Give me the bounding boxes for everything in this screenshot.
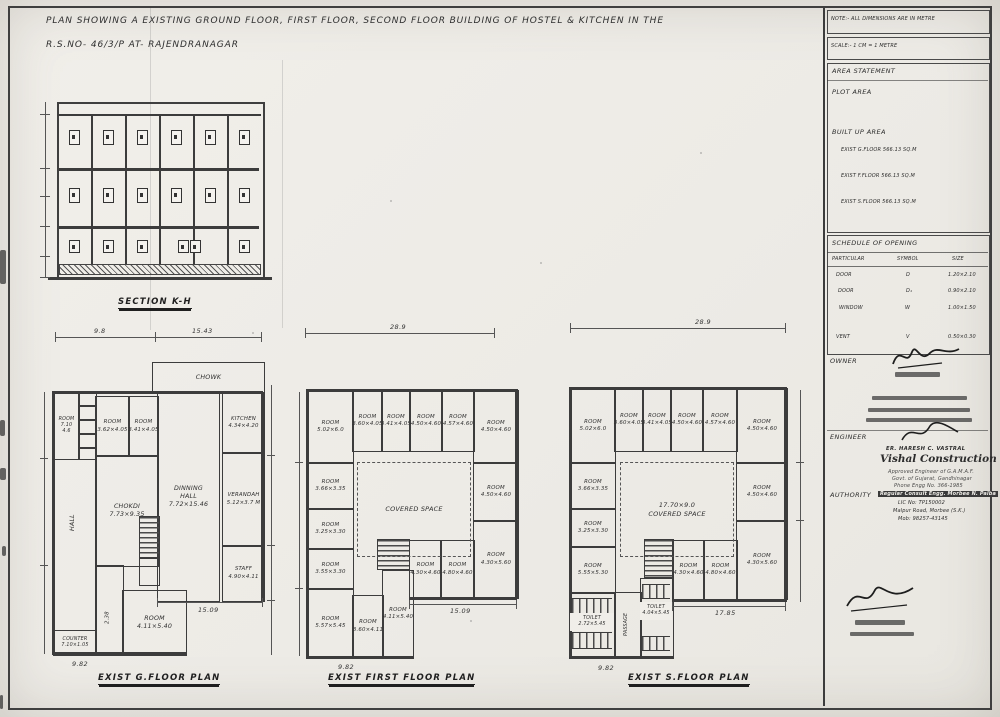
paper-spot <box>700 152 702 154</box>
room: ROOM 3.60×4.05 <box>352 390 383 452</box>
engineer-line: Phone Engg No. 366-1985 <box>894 483 963 489</box>
room-kitchen: KITCHEN 4.34×4.20 <box>222 392 265 454</box>
dim-tick <box>40 277 50 278</box>
room-staff: STAFF 4.90×4.11 <box>222 545 265 602</box>
room-dinning-hall: DINNING HALL 7.72×15.46 <box>157 392 220 602</box>
divider <box>827 80 988 81</box>
owner-signature <box>890 340 962 372</box>
engineer-line: Govt. of Gujarat, Gandhinagar <box>892 476 972 482</box>
col-size: SIZE <box>952 256 964 262</box>
dim-tick <box>40 256 50 257</box>
toilet-stalls <box>642 636 670 651</box>
room: ROOM 3.60×4.11 <box>352 595 384 658</box>
dim-tick <box>785 602 786 611</box>
scan-smudge <box>2 546 6 556</box>
sheet-title-line2: R.S.NO- 46/3/P AT- RAJENDRANAGAR <box>46 40 239 50</box>
schedule-cell: D <box>906 272 910 278</box>
divider <box>827 266 988 267</box>
dim-label: 9.8 <box>94 327 106 335</box>
paper-spot <box>470 620 472 622</box>
vert-dim-line <box>271 385 272 655</box>
schedule-cell: WINDOW <box>839 305 863 311</box>
room-toilet-label: TOILET 4.04×5.45 <box>640 602 672 620</box>
section-column <box>227 116 229 264</box>
dim-tick <box>516 600 517 609</box>
window-symbol <box>190 240 201 253</box>
room: ROOM 3.25×3.30 <box>307 508 354 550</box>
window-symbol <box>69 130 80 145</box>
window-symbol <box>239 130 250 145</box>
stairs <box>139 516 160 558</box>
titleblock-separator <box>823 8 825 706</box>
window-symbol <box>178 240 189 253</box>
room-wc <box>139 558 160 586</box>
schedule-cell: DOOR <box>836 272 852 278</box>
room: ROOM 5.02×6.0 <box>307 390 354 464</box>
second-plan-label: EXIST S.FLOOR PLAN <box>628 673 750 685</box>
first-plan-label: EXIST FIRST FLOOR PLAN <box>328 673 475 685</box>
window-symbol <box>171 188 182 203</box>
scale-text: SCALE:- 1 CM = 1 METRE <box>831 43 897 49</box>
dim-tick <box>262 598 263 607</box>
engineer-name: ER. HARESH C. VASTRAL <box>886 446 965 452</box>
authority-line: Regular Consult Engg. Morbee N. Palba <box>878 491 998 497</box>
note-text: NOTE:- ALL DIMENSIONS ARE IN METRE <box>831 16 935 22</box>
dim-tick <box>40 168 50 169</box>
schedule-cell: 1.20×2.10 <box>948 272 976 278</box>
divider <box>827 252 988 253</box>
section-column <box>125 116 127 264</box>
section-ground-line <box>48 277 272 280</box>
dim-label: 9.82 <box>72 660 88 668</box>
dim-line <box>409 604 517 605</box>
room-verandah: VERANDAH 5.12×3.7 M <box>222 452 265 547</box>
dim-label: 9.82 <box>598 664 614 672</box>
room-counter: COUNTER 7.10×1.05 <box>53 630 97 656</box>
schedule-cell: 1.00×1.50 <box>948 305 976 311</box>
dim-tick <box>785 323 786 333</box>
dim-tick <box>55 332 56 342</box>
dim-tick <box>796 520 804 521</box>
window-symbol <box>205 130 216 145</box>
ground-plan-label: EXIST G.FLOOR PLAN <box>98 673 220 685</box>
dim-tick <box>40 565 48 566</box>
drawing-sheet: PLAN SHOWING A EXISTING GROUND FLOOR, FI… <box>0 0 1000 717</box>
dim-label: 28.9 <box>695 318 711 326</box>
col-particular: PARTICULAR <box>832 256 865 262</box>
room: ROOM 4.30×5.60 <box>473 520 519 599</box>
dim-tick <box>267 455 275 456</box>
dim-label: 17.85 <box>715 609 736 617</box>
schedule-cell: VENT <box>836 334 850 340</box>
schedule-cell: D₁ <box>906 288 912 294</box>
room: ROOM 4.57×4.60 <box>441 390 475 452</box>
room: ROOM 3.66×3.35 <box>570 462 616 510</box>
window-symbol <box>239 188 250 203</box>
dim-tick <box>494 328 495 338</box>
room: ROOM 3.25×3.30 <box>570 508 616 548</box>
dim-tick <box>40 114 50 115</box>
owner-stamp-line <box>868 408 970 412</box>
paper-spot <box>252 332 254 334</box>
room: ROOM 5.02×6.0 <box>570 388 616 464</box>
window-symbol <box>239 240 250 253</box>
vert-dim-line <box>800 390 801 602</box>
authority-label: AUTHORITY <box>830 491 871 499</box>
dim-label: 15.09 <box>450 607 471 615</box>
sheet-title-line1: PLAN SHOWING A EXISTING GROUND FLOOR, FI… <box>46 16 664 26</box>
engineer-label: ENGINEER <box>830 433 867 441</box>
dim-tick <box>155 332 156 342</box>
dim-tick <box>295 462 303 463</box>
owner-stamp-line <box>872 396 967 400</box>
window-symbol <box>137 130 148 145</box>
engineer-signature <box>900 418 962 446</box>
dim-tick <box>261 332 262 342</box>
room: ROOM 4.57×4.60 <box>702 388 738 452</box>
area-row: EXIST S.FLOOR 566.13 SQ.M <box>841 199 916 205</box>
dim-tick <box>40 458 48 459</box>
room: ROOM 5.57×5.45 <box>307 588 354 658</box>
owner-stamp-line <box>895 372 940 377</box>
authority-line: Malpur Road, Morbee (S.K.) <box>893 508 965 514</box>
section-column <box>91 116 93 264</box>
dim-tick <box>409 600 410 609</box>
toilet-stalls <box>642 584 670 599</box>
dim-tick <box>305 328 306 338</box>
room: ROOM 3.55×3.30 <box>307 548 354 590</box>
room: ROOM 4.11×5.40 <box>122 590 187 656</box>
room: ROOM 4.50×4.60 <box>473 462 519 522</box>
paper-crease <box>282 60 283 328</box>
room: ROOM 3.60×4.05 <box>614 388 644 452</box>
approval-stamp-line <box>855 620 905 625</box>
scan-smudge <box>0 420 5 436</box>
dim-tick <box>40 226 50 227</box>
paper-spot <box>390 200 392 202</box>
engineer-firm: Vishal Construction <box>880 453 997 465</box>
dim-line <box>672 606 786 607</box>
dim-tick <box>157 598 158 607</box>
dim-tick <box>570 323 571 333</box>
section-plinth-hatch <box>59 264 261 275</box>
room: ROOM 4.50×4.60 <box>409 390 443 452</box>
corridor-dim: 2.38 <box>101 598 115 638</box>
dim-tick <box>796 462 804 463</box>
window-symbol <box>205 188 216 203</box>
schedule-cell: DOOR <box>838 288 854 294</box>
area-statement-heading: AREA STATEMENT <box>832 67 895 75</box>
window-symbol <box>69 240 80 253</box>
section-outline <box>57 102 265 280</box>
room: ROOM 4.30×5.60 <box>736 520 788 600</box>
toilet-stalls <box>572 632 612 649</box>
covered-space: COVERED SPACE <box>357 462 471 557</box>
dim-tick <box>672 602 673 611</box>
dim-tick <box>40 196 50 197</box>
window-symbol <box>69 188 80 203</box>
dim-label: 9.82 <box>338 663 354 671</box>
room-hall-label: HALL <box>64 495 82 550</box>
window-symbol <box>103 188 114 203</box>
section-column <box>159 116 161 264</box>
covered-space: 17.70×9.0 COVERED SPACE <box>620 462 734 557</box>
dim-label: 15.43 <box>192 327 213 335</box>
room-toilet-label: TOILET 2.72×5.45 <box>570 613 614 631</box>
schedule-cell: W <box>905 305 910 311</box>
room: ROOM 3.41×4.05 <box>128 396 159 457</box>
window-symbol <box>137 240 148 253</box>
authority-line: Mob: 98257-43145 <box>898 516 948 522</box>
room-chowk: CHOWK <box>152 362 265 394</box>
builtup-area-label: BUILT UP AREA <box>832 128 886 136</box>
scan-smudge <box>0 695 3 709</box>
paper-spot <box>540 262 542 264</box>
scan-smudge <box>0 250 6 284</box>
passage-label: PASSAGE <box>620 598 634 650</box>
room: ROOM 3.62×4.05 <box>95 396 130 457</box>
schedule-cell: 0.90×2.10 <box>948 288 976 294</box>
plot-area-label: PLOT AREA <box>832 88 872 96</box>
room: ROOM 3.41×4.05 <box>642 388 672 452</box>
room: ROOM 4.50×4.60 <box>736 388 788 464</box>
dim-label: 28.9 <box>390 323 406 331</box>
dim-tick <box>295 588 303 589</box>
room: ROOM 3.66×3.35 <box>307 462 354 510</box>
dim-line <box>157 602 263 603</box>
area-row: EXIST G.FLOOR 566.13 SQ.M <box>841 147 917 153</box>
section-dim-line <box>45 102 46 278</box>
authority-line: LIC No: TP150002 <box>898 500 945 506</box>
approval-signature <box>845 578 917 616</box>
dim-line <box>55 337 262 338</box>
section-label: SECTION K-H <box>118 297 192 309</box>
room-small: ROOM 7.10 4.6 <box>53 392 80 460</box>
col-symbol: SYMBOL <box>897 256 919 262</box>
room: ROOM 3.41×4.05 <box>381 390 411 452</box>
window-symbol <box>137 188 148 203</box>
dim-tick <box>267 545 275 546</box>
engineer-line: Approved Engineer of G.A.M.A.F. <box>888 469 974 475</box>
window-symbol <box>103 240 114 253</box>
schedule-heading: SCHEDULE OF OPENING <box>832 239 918 247</box>
dim-line <box>305 333 495 334</box>
dim-label: 15.09 <box>198 606 219 614</box>
vert-dim-line <box>44 392 45 654</box>
window-symbol <box>171 130 182 145</box>
dim-line <box>570 328 786 329</box>
room: ROOM 4.50×4.60 <box>736 462 788 522</box>
room: ROOM 4.50×4.60 <box>473 390 519 464</box>
note-box <box>827 10 990 34</box>
window-symbol <box>103 130 114 145</box>
approval-stamp-line <box>850 632 914 636</box>
area-row: EXIST F.FLOOR 566.13 SQ.M <box>841 173 915 179</box>
dim-tick <box>267 600 275 601</box>
scan-smudge <box>0 468 6 480</box>
room: ROOM 5.55×5.30 <box>570 546 616 594</box>
vert-dim-line <box>299 392 300 656</box>
owner-label: OWNER <box>830 357 857 365</box>
room: ROOM 4.50×4.60 <box>670 388 704 452</box>
